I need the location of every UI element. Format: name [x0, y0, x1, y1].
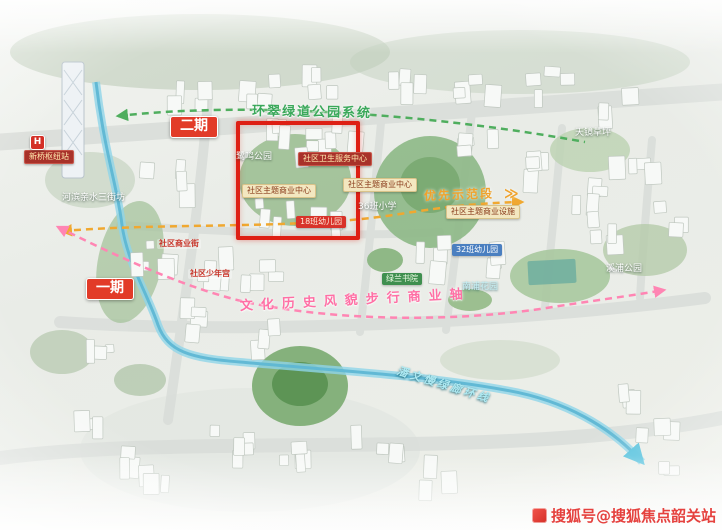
master-plan-map: 二期一期环翠绿道公园系统鹭鸣公园社区卫生服务中心社区主题商业中心社区主题商业中心…: [0, 0, 722, 530]
metro-icon: H: [30, 135, 45, 150]
sohu-logo-icon: [532, 508, 547, 523]
phase-2-highlight-box: [236, 121, 360, 240]
watermark: 搜狐号@搜狐焦点韶关站: [532, 505, 716, 526]
watermark-text: 搜狐号@搜狐焦点韶关站: [551, 505, 716, 526]
landmark-tower: [62, 62, 84, 178]
aerial-rendering: [0, 0, 722, 530]
